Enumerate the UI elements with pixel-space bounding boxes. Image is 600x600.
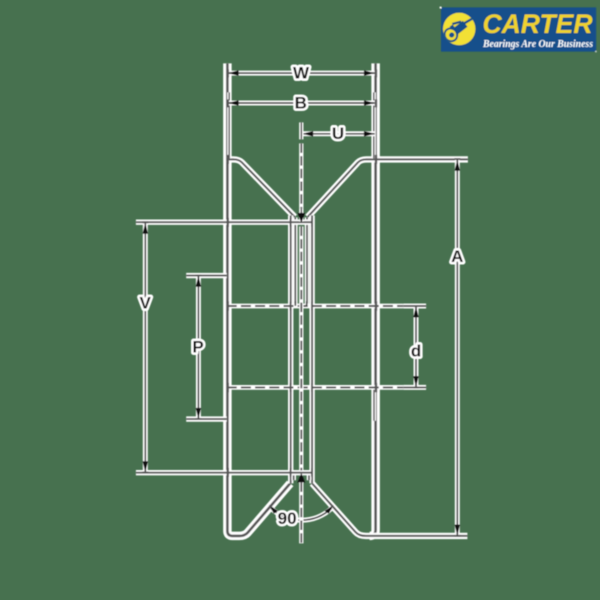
- svg-text:CARTER: CARTER: [483, 9, 593, 39]
- svg-text:B: B: [295, 93, 307, 112]
- svg-text:90: 90: [278, 509, 297, 528]
- svg-text:W: W: [293, 64, 310, 83]
- svg-text:Bearings Are Our Business: Bearings Are Our Business: [482, 38, 593, 50]
- svg-text:V: V: [140, 294, 152, 313]
- svg-text:A: A: [451, 247, 463, 266]
- svg-text:U: U: [332, 124, 344, 143]
- svg-text:P: P: [192, 338, 203, 357]
- svg-text:d: d: [411, 341, 421, 360]
